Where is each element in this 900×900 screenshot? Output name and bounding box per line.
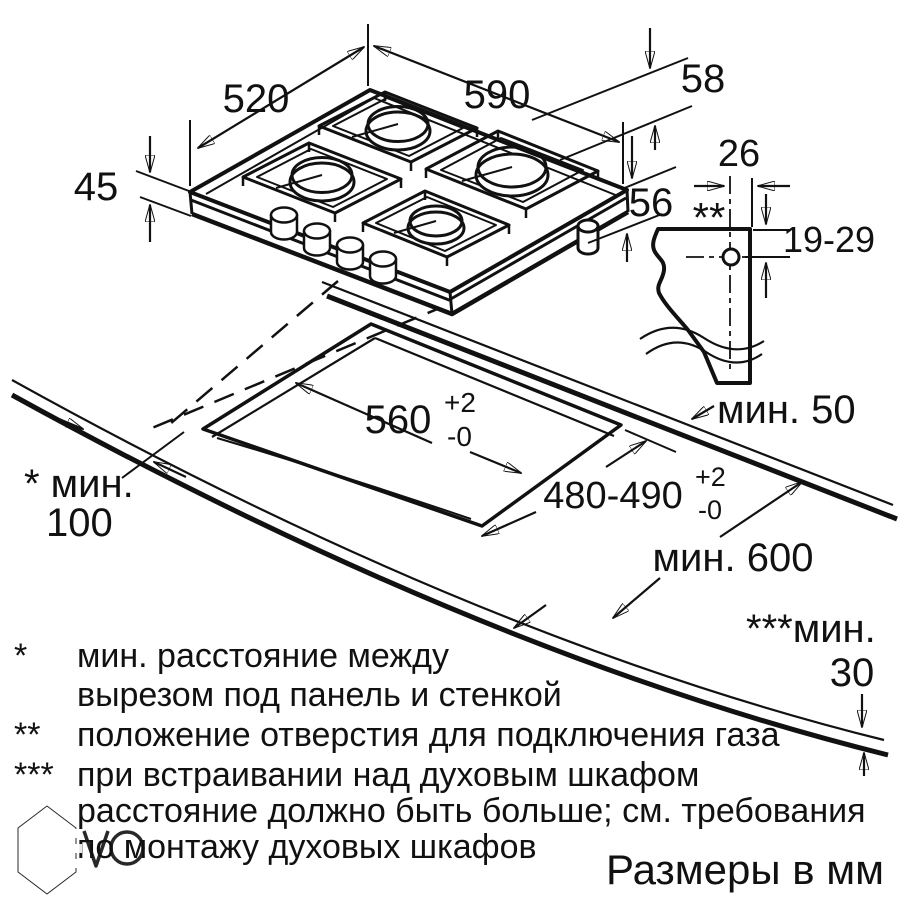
footnote-marker: ** <box>14 716 40 754</box>
dim-58-ext-upper <box>532 58 688 120</box>
dim-58-label: 58 <box>681 57 726 101</box>
dim-480-line-band <box>514 605 546 628</box>
min30-label: ***мин. <box>746 607 876 651</box>
footnote-marker: *** <box>14 756 54 794</box>
footnote-text: мин. расстояние между <box>77 637 449 675</box>
min600-label: мин. 600 <box>653 536 814 580</box>
dim-560-label: 560 <box>365 398 432 442</box>
installation-diagram: 560 +2 -0 480-490 +2 -0 мин. 50 мин. 600… <box>0 0 900 900</box>
burner-base <box>408 212 464 244</box>
min600-arrow-down <box>613 578 660 618</box>
footnote-text: вырезом под панель и стенкой <box>77 676 562 714</box>
dim-56-label: 56 <box>629 181 674 225</box>
knob-4-top <box>370 252 396 267</box>
min50-label: мин. 50 <box>717 388 856 432</box>
knob-3-top <box>337 238 363 253</box>
hob-drawing <box>190 90 628 314</box>
dim-480-tol-plus: +2 <box>695 462 726 492</box>
foot-top <box>578 220 598 232</box>
hob-foot <box>578 220 598 254</box>
dim-26-label: 26 <box>718 133 760 175</box>
dimension-hob-total-height: 58 <box>532 28 725 160</box>
dim-560-tol-minus: -0 <box>447 421 472 452</box>
dim-480-line-upper <box>606 441 646 467</box>
dim-480-label: 480-490 <box>543 475 682 517</box>
dim-19-29-label: 19-29 <box>783 219 875 260</box>
dim-58-ext-lower <box>560 106 692 160</box>
dimension-min-back-clearance: мин. 50 <box>692 388 856 432</box>
footnote-marker: * <box>14 637 27 675</box>
watermark-e-bar <box>52 859 82 868</box>
knob-2-top <box>304 224 330 239</box>
dim-45-label: 45 <box>74 165 119 209</box>
gas-hole <box>723 249 739 265</box>
min30-value: 30 <box>830 651 875 695</box>
dim-560-tol-plus: +2 <box>444 387 476 418</box>
min100-value: 100 <box>46 501 113 545</box>
dimension-hob-front-height: 45 <box>74 136 191 242</box>
dim-590-label: 590 <box>464 73 531 117</box>
gas-marker-label: ** <box>693 194 726 241</box>
units-note: Размеры в мм <box>606 846 884 893</box>
watermark-e-bar <box>52 829 82 838</box>
footnotes: * мин. расстояние между вырезом под пане… <box>14 637 866 866</box>
watermark-e-bar <box>52 844 82 853</box>
dim-520-label: 520 <box>223 77 290 121</box>
gas-connection-section: 26 ** 19-29 <box>640 133 875 383</box>
min50-arrow <box>692 406 714 419</box>
dimension-min-wall-clearance: * мин. 100 <box>24 412 186 545</box>
dim-480-tol-minus: -0 <box>698 495 722 525</box>
diagram-canvas: 560 +2 -0 480-490 +2 -0 мин. 50 мин. 600… <box>0 0 900 900</box>
knob-1-top <box>271 208 297 223</box>
footnote-text: расстояние должно быть больше; см. требо… <box>77 792 866 830</box>
dim-45-ext-upper <box>136 171 189 191</box>
footnote-text: при встраивании над духовым шкафом <box>77 756 699 794</box>
dim-45-ext-lower <box>140 197 191 216</box>
footnote-text: по монтажу духовых шкафов <box>77 828 537 866</box>
footnote-text: положение отверстия для подключения газа <box>77 716 780 754</box>
min600-arrow-up <box>720 482 802 537</box>
min100-label: * мин. <box>24 462 134 506</box>
